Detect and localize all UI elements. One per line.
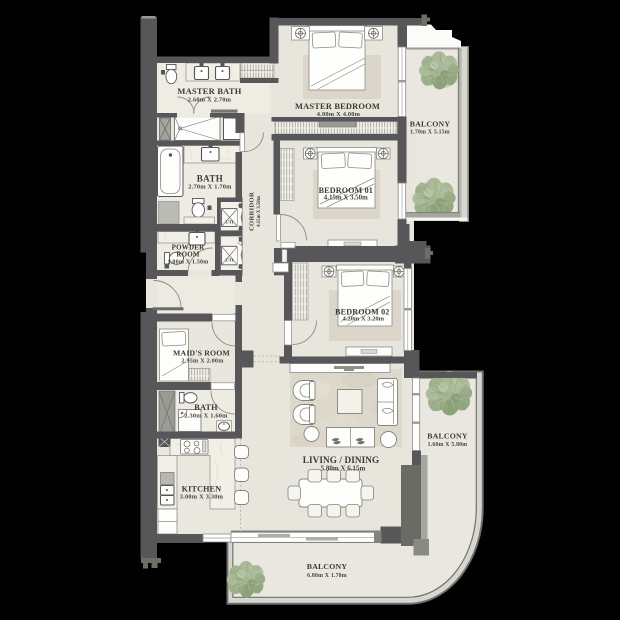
svg-text:5.80m X 6.15m: 5.80m X 6.15m [321, 464, 366, 472]
svg-text:BALCONY: BALCONY [427, 432, 468, 441]
svg-text:2.60m X 2.70m: 2.60m X 2.70m [188, 96, 232, 103]
svg-text:MAID'S ROOM: MAID'S ROOM [173, 349, 230, 358]
svg-text:UTI: UTI [225, 258, 233, 263]
svg-text:6.80m X 1.70m: 6.80m X 1.70m [307, 573, 347, 579]
svg-text:CORRIDOR: CORRIDOR [249, 192, 256, 231]
svg-text:4.20m X 3.20m: 4.20m X 3.20m [343, 316, 385, 323]
svg-text:2.70m X 1.70m: 2.70m X 1.70m [188, 184, 232, 191]
svg-text:2.95m X 2.00m: 2.95m X 2.00m [181, 358, 224, 365]
svg-text:BATH: BATH [194, 403, 218, 412]
svg-text:MASTER BATH: MASTER BATH [177, 86, 241, 96]
svg-text:BALCONY: BALCONY [307, 562, 348, 571]
svg-text:1.70m X 5.15m: 1.70m X 5.15m [410, 130, 450, 136]
svg-text:2.30m X 1.60m: 2.30m X 1.60m [184, 412, 228, 419]
svg-text:3.00m X 3.30m: 3.00m X 3.30m [180, 494, 224, 501]
svg-text:1.60m X 5.80m: 1.60m X 5.80m [428, 442, 468, 448]
svg-text:BATH: BATH [197, 173, 223, 183]
svg-text:4.15m X 3.50m: 4.15m X 3.50m [257, 196, 262, 227]
svg-text:4.00m X 4.00m: 4.00m X 4.00m [317, 111, 361, 118]
svg-text:BALCONY: BALCONY [410, 119, 451, 128]
svg-text:1.80m X 1.50m: 1.80m X 1.50m [168, 260, 209, 266]
svg-text:UTI: UTI [225, 220, 233, 225]
svg-text:MASTER BEDROOM: MASTER BEDROOM [295, 102, 380, 111]
svg-text:4.15m X 3.50m: 4.15m X 3.50m [324, 195, 368, 202]
svg-text:ROOM: ROOM [176, 251, 200, 259]
svg-text:KITCHEN: KITCHEN [182, 485, 222, 494]
